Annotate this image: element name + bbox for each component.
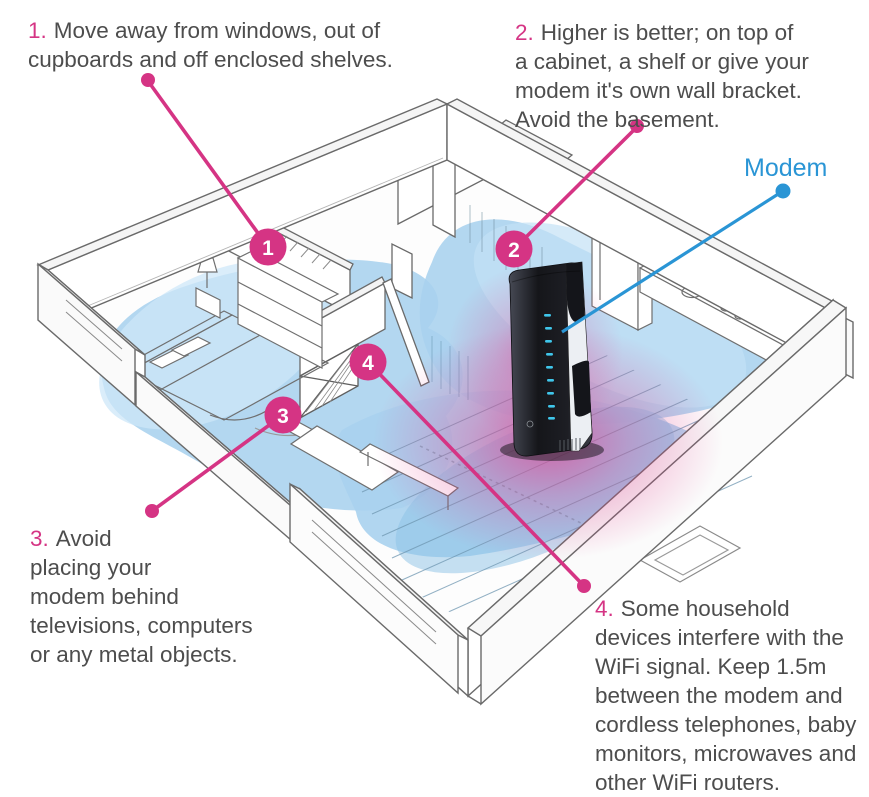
note-1-number: 1. — [28, 18, 47, 43]
note-1: 1.Move away from windows, out of cupboar… — [28, 16, 418, 74]
modem-pointer-dot — [776, 184, 791, 199]
callout-1-number: 1 — [262, 237, 274, 260]
note-4-text: Some household devices interfere with th… — [595, 596, 856, 795]
note-2-number: 2. — [515, 20, 534, 45]
callout-2-number: 2 — [508, 239, 520, 262]
modem-label: Modem — [744, 154, 827, 183]
note-4: 4.Some household devices interfere with … — [595, 594, 860, 797]
note-2: 2.Higher is better; on top of a cabinet,… — [515, 18, 865, 134]
callout-4-number: 4 — [362, 352, 374, 375]
note-3-number: 3. — [30, 526, 49, 551]
diagram: 1 2 3 4 1.Move away from windows, out of… — [0, 0, 869, 773]
note-3: 3.Avoid placing your modem behind televi… — [30, 524, 280, 669]
note-4-number: 4. — [595, 596, 614, 621]
note-1-text: Move away from windows, out of cupboards… — [28, 18, 393, 72]
callout-3-number: 3 — [277, 405, 289, 428]
note-3-text: Avoid placing your modem behind televisi… — [30, 526, 253, 667]
note-2-text: Higher is better; on top of a cabinet, a… — [515, 20, 809, 132]
